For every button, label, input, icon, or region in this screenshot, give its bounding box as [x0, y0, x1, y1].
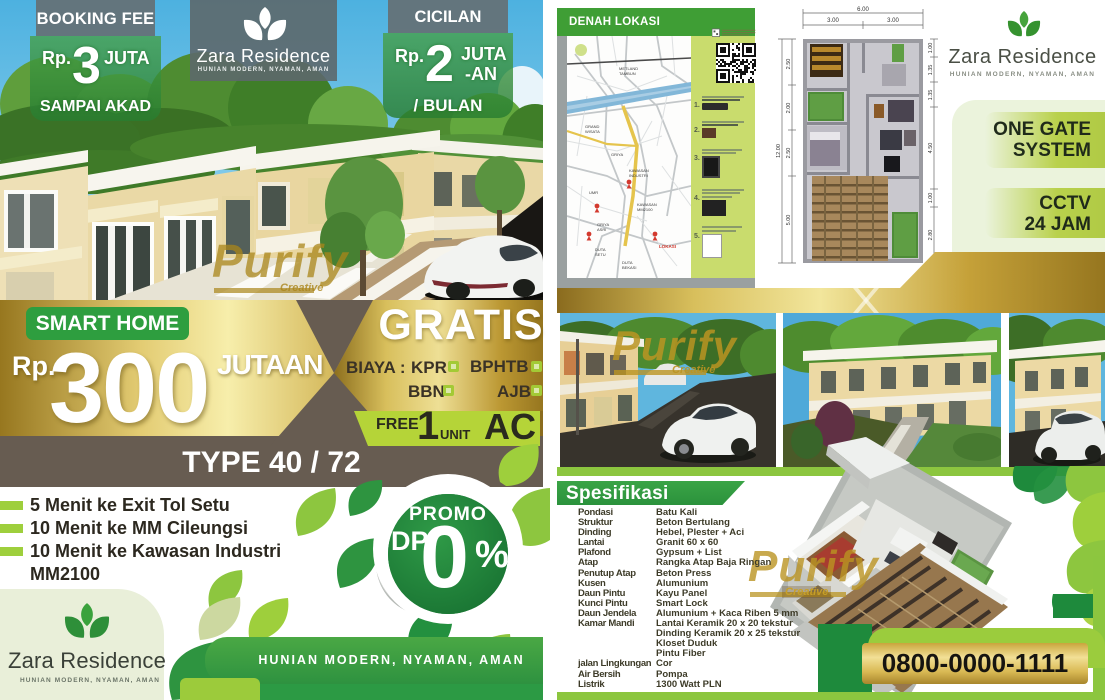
- svg-text:1.35: 1.35: [928, 90, 934, 101]
- svg-text:TAMBUN: TAMBUN: [619, 71, 636, 76]
- svg-text:1.00: 1.00: [928, 193, 934, 204]
- svg-text:2.00: 2.00: [786, 103, 792, 114]
- svg-text:2.80: 2.80: [928, 230, 934, 241]
- svg-text:UMR: UMR: [589, 190, 598, 195]
- svg-text:1.00: 1.00: [928, 43, 934, 54]
- svg-text:6.00: 6.00: [857, 7, 869, 13]
- svg-text:WISATA: WISATA: [585, 129, 600, 134]
- svg-text:2.50: 2.50: [786, 148, 792, 159]
- svg-text:12.00: 12.00: [776, 144, 782, 158]
- svg-text:4.50: 4.50: [928, 143, 934, 154]
- svg-text:2.50: 2.50: [786, 59, 792, 70]
- svg-text:INDUSTRI: INDUSTRI: [629, 173, 648, 178]
- svg-text:MM2100: MM2100: [637, 207, 653, 212]
- svg-text:ASRI: ASRI: [597, 227, 606, 232]
- svg-text:1.35: 1.35: [928, 65, 934, 76]
- svg-text:LOKASI: LOKASI: [659, 244, 676, 249]
- svg-text:3.00: 3.00: [827, 18, 839, 24]
- svg-text:GRIYA: GRIYA: [611, 152, 623, 157]
- svg-text:3.00: 3.00: [887, 18, 899, 24]
- svg-text:5.00: 5.00: [786, 215, 792, 226]
